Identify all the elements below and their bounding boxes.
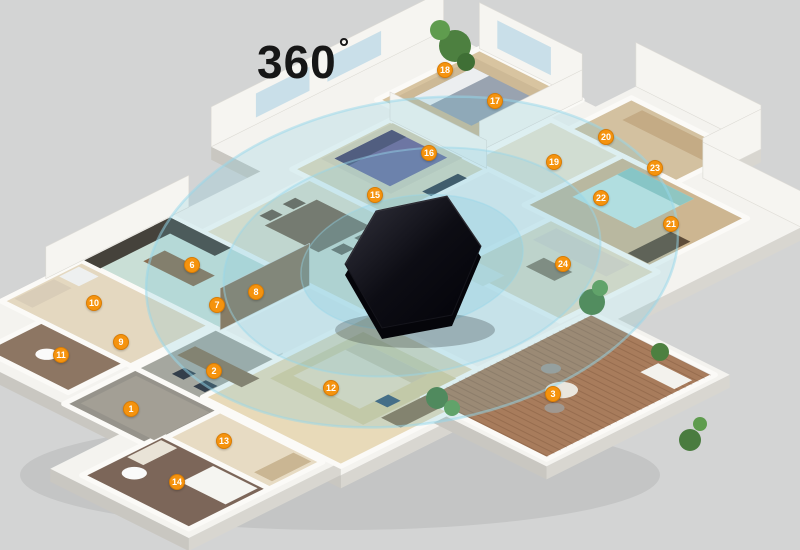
room-badge-22: 22: [593, 190, 609, 206]
room-badge-7: 7: [209, 297, 225, 313]
room-badge-10: 10: [86, 295, 102, 311]
room-badge-18: 18: [437, 62, 453, 78]
plant: [693, 417, 707, 431]
room-badge-17: 17: [487, 93, 503, 109]
room-badge-23: 23: [647, 160, 663, 176]
rotation-angle-value: 360: [257, 36, 337, 88]
plant: [651, 343, 669, 361]
rotation-angle-label: 360°: [257, 34, 350, 85]
room-badge-6: 6: [184, 257, 200, 273]
room-badge-1: 1: [123, 401, 139, 417]
furniture-toilet: [122, 467, 147, 480]
plant: [430, 20, 450, 40]
room-badge-14: 14: [169, 474, 185, 490]
room-badge-8: 8: [248, 284, 264, 300]
room-badge-3: 3: [545, 386, 561, 402]
smart-hub-coverage-promo: 1236789101112131415161718192021222324 36…: [0, 0, 800, 550]
room-badge-20: 20: [598, 129, 614, 145]
degree-symbol: °: [339, 32, 350, 62]
room-badge-11: 11: [53, 347, 69, 363]
room-badge-16: 16: [421, 145, 437, 161]
room-badge-24: 24: [555, 256, 571, 272]
furniture-patio-chair: [544, 403, 564, 413]
floorplan-illustration: [0, 0, 800, 550]
room-badge-12: 12: [323, 380, 339, 396]
room-badge-19: 19: [546, 154, 562, 170]
room-badge-15: 15: [367, 187, 383, 203]
room-badge-13: 13: [216, 433, 232, 449]
room-badge-21: 21: [663, 216, 679, 232]
plant: [679, 429, 701, 451]
plant: [457, 53, 475, 71]
room-badge-9: 9: [113, 334, 129, 350]
room-badge-2: 2: [206, 363, 222, 379]
